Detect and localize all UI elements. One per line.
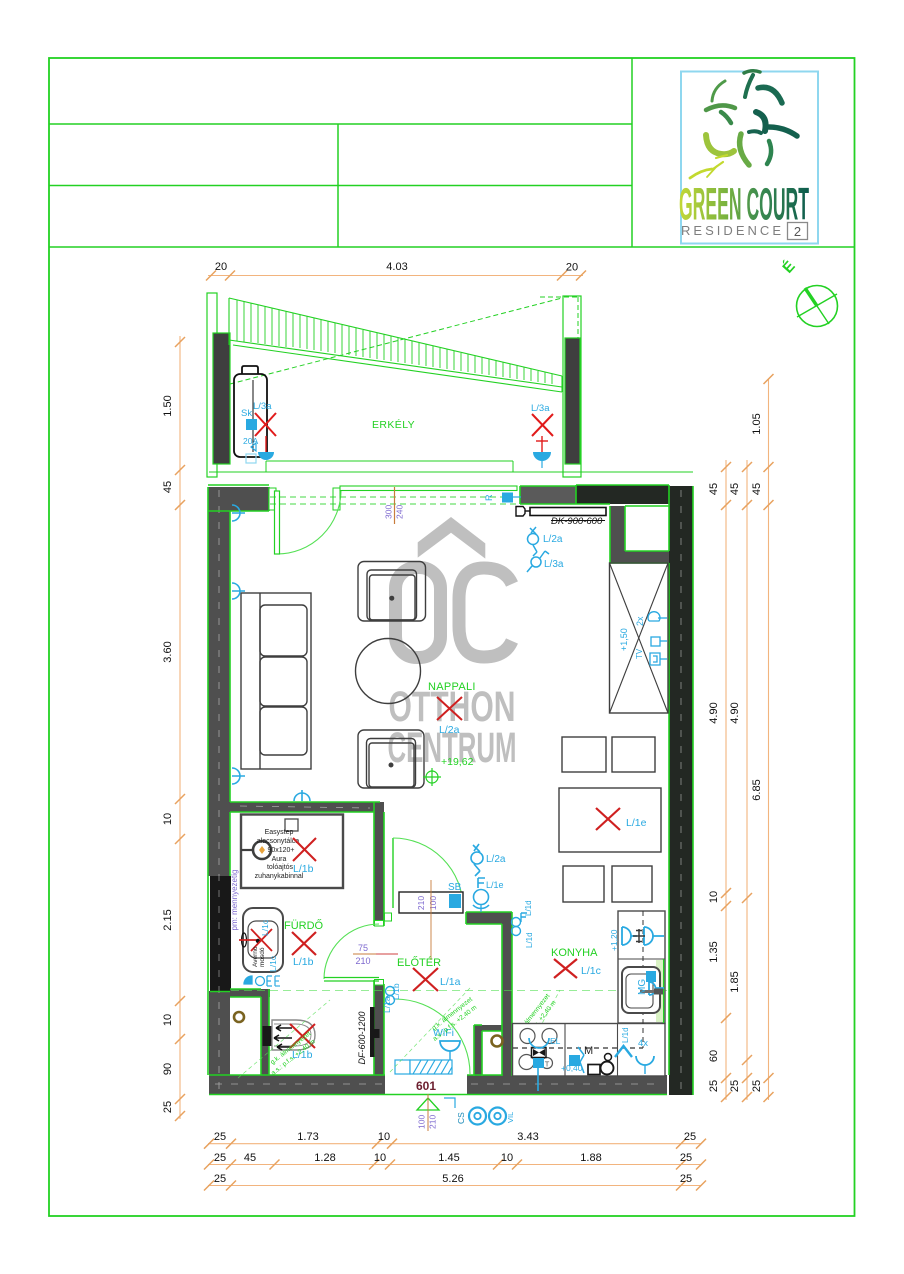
svg-text:RESIDENCE: RESIDENCE: [681, 223, 781, 238]
svg-text:601: 601: [416, 1079, 436, 1093]
svg-text:mosdó: mosdó: [259, 947, 266, 967]
svg-text:10: 10: [501, 1152, 513, 1164]
svg-text:210: 210: [428, 1115, 438, 1129]
svg-text:45: 45: [729, 483, 741, 495]
svg-text:L/1e: L/1e: [626, 817, 647, 829]
svg-text:L/3a: L/3a: [544, 559, 564, 570]
svg-text:210: 210: [416, 896, 426, 910]
svg-text:3.43: 3.43: [517, 1131, 538, 1143]
svg-text:4.90: 4.90: [708, 702, 720, 723]
svg-text:EL: EL: [550, 1036, 561, 1046]
svg-text:+1,20: +1,20: [609, 929, 619, 951]
svg-text:+19,62: +19,62: [441, 756, 474, 768]
svg-text:1.85: 1.85: [729, 971, 741, 992]
svg-text:Averno: Averno: [252, 946, 259, 967]
svg-text:3.60: 3.60: [162, 641, 174, 662]
svg-text:1.35: 1.35: [708, 941, 720, 962]
svg-text:ERKÉLY: ERKÉLY: [372, 418, 415, 431]
svg-text:25: 25: [214, 1173, 226, 1185]
svg-text:VIL: VIL: [506, 1112, 515, 1123]
svg-text:100: 100: [428, 896, 438, 910]
svg-text:1.05: 1.05: [751, 413, 763, 434]
svg-text:Easystep: Easystep: [265, 829, 294, 836]
svg-text:25: 25: [162, 1101, 174, 1113]
svg-text:100: 100: [417, 1115, 427, 1129]
svg-text:L/1e: L/1e: [486, 880, 504, 890]
svg-text:25: 25: [214, 1152, 226, 1164]
svg-text:DK-900-600: DK-900-600: [551, 516, 603, 527]
svg-text:L/2a: L/2a: [543, 534, 563, 545]
svg-text:240: 240: [395, 505, 405, 519]
svg-text:L/3a: L/3a: [253, 401, 272, 412]
svg-text:L/1b: L/1b: [293, 956, 314, 968]
svg-text:KONYHA: KONYHA: [551, 947, 598, 959]
svg-text:10: 10: [378, 1131, 390, 1143]
svg-text:25: 25: [708, 1080, 720, 1092]
svg-text:TV: TV: [635, 648, 644, 659]
svg-text:ELŐTÉR: ELŐTÉR: [397, 955, 441, 969]
svg-text:L/2a: L/2a: [486, 854, 506, 865]
svg-text:tolóajtós: tolóajtós: [267, 864, 294, 871]
svg-text:4.03: 4.03: [386, 261, 407, 273]
svg-text:SB: SB: [448, 882, 462, 893]
svg-text:CS: CS: [456, 1112, 466, 1124]
svg-text:20: 20: [215, 261, 227, 273]
svg-text:Aura: Aura: [272, 856, 287, 863]
svg-text:45: 45: [162, 481, 174, 493]
svg-text:45: 45: [244, 1152, 256, 1164]
svg-text:pm: mennyezetig: pm: mennyezetig: [230, 870, 239, 931]
svg-text:10: 10: [374, 1152, 386, 1164]
svg-text:Sk: Sk: [241, 408, 252, 419]
svg-text:25: 25: [214, 1131, 226, 1143]
svg-text:25: 25: [684, 1131, 696, 1143]
svg-text:+1,50: +1,50: [619, 628, 629, 651]
svg-text:1.88: 1.88: [580, 1152, 601, 1164]
svg-text:1.28: 1.28: [314, 1152, 335, 1164]
svg-text:L/1d: L/1d: [524, 900, 533, 916]
svg-text:10: 10: [162, 1014, 174, 1026]
svg-text:45: 45: [708, 483, 720, 495]
svg-text:L/3a: L/3a: [531, 403, 550, 414]
svg-text:300: 300: [384, 505, 394, 519]
svg-text:2x: 2x: [635, 616, 645, 626]
svg-text:10: 10: [162, 813, 174, 825]
svg-text:10: 10: [708, 891, 720, 903]
svg-text:L/1c: L/1c: [268, 955, 278, 972]
svg-text:20: 20: [566, 262, 578, 274]
svg-text:6.85: 6.85: [751, 779, 763, 800]
svg-text:5.26: 5.26: [442, 1173, 463, 1185]
svg-text:M: M: [584, 1045, 593, 1057]
svg-text:25: 25: [680, 1152, 692, 1164]
svg-text:L/1d: L/1d: [525, 932, 534, 948]
svg-text:NAPPALI: NAPPALI: [428, 681, 476, 693]
svg-text:25: 25: [680, 1173, 692, 1185]
svg-text:4.90: 4.90: [729, 702, 741, 723]
svg-text:R: R: [484, 494, 494, 501]
svg-text:1.50: 1.50: [162, 395, 174, 416]
svg-text:DF-600-1200: DF-600-1200: [357, 1011, 367, 1064]
svg-text:MG: MG: [637, 979, 648, 995]
svg-text:L/1b: L/1b: [391, 983, 401, 1000]
svg-text:45: 45: [751, 483, 763, 495]
svg-text:90x120+: 90x120+: [267, 847, 294, 854]
svg-text:75: 75: [358, 943, 368, 953]
svg-text:25: 25: [729, 1080, 741, 1092]
svg-text:2: 2: [794, 224, 801, 239]
svg-text:L/1b: L/1b: [293, 863, 314, 875]
svg-text:+0,40: +0,40: [561, 1063, 583, 1073]
svg-text:2.15: 2.15: [162, 909, 174, 930]
svg-text:FÜRDŐ: FÜRDŐ: [284, 918, 324, 932]
svg-text:210: 210: [355, 956, 370, 966]
svg-text:L/1c: L/1c: [581, 965, 601, 977]
svg-text:L/1d: L/1d: [621, 1027, 630, 1043]
svg-text:90: 90: [162, 1063, 174, 1075]
svg-text:1.73: 1.73: [297, 1131, 318, 1143]
svg-text:L/1c: L/1c: [260, 919, 270, 936]
svg-text:1.45: 1.45: [438, 1152, 459, 1164]
svg-text:L/1a: L/1a: [440, 976, 461, 988]
svg-text:25: 25: [751, 1080, 763, 1092]
svg-text:60: 60: [708, 1050, 720, 1062]
svg-text:4x: 4x: [638, 1038, 648, 1049]
svg-text:L/2a: L/2a: [439, 724, 460, 736]
svg-text:T: T: [545, 1060, 550, 1069]
